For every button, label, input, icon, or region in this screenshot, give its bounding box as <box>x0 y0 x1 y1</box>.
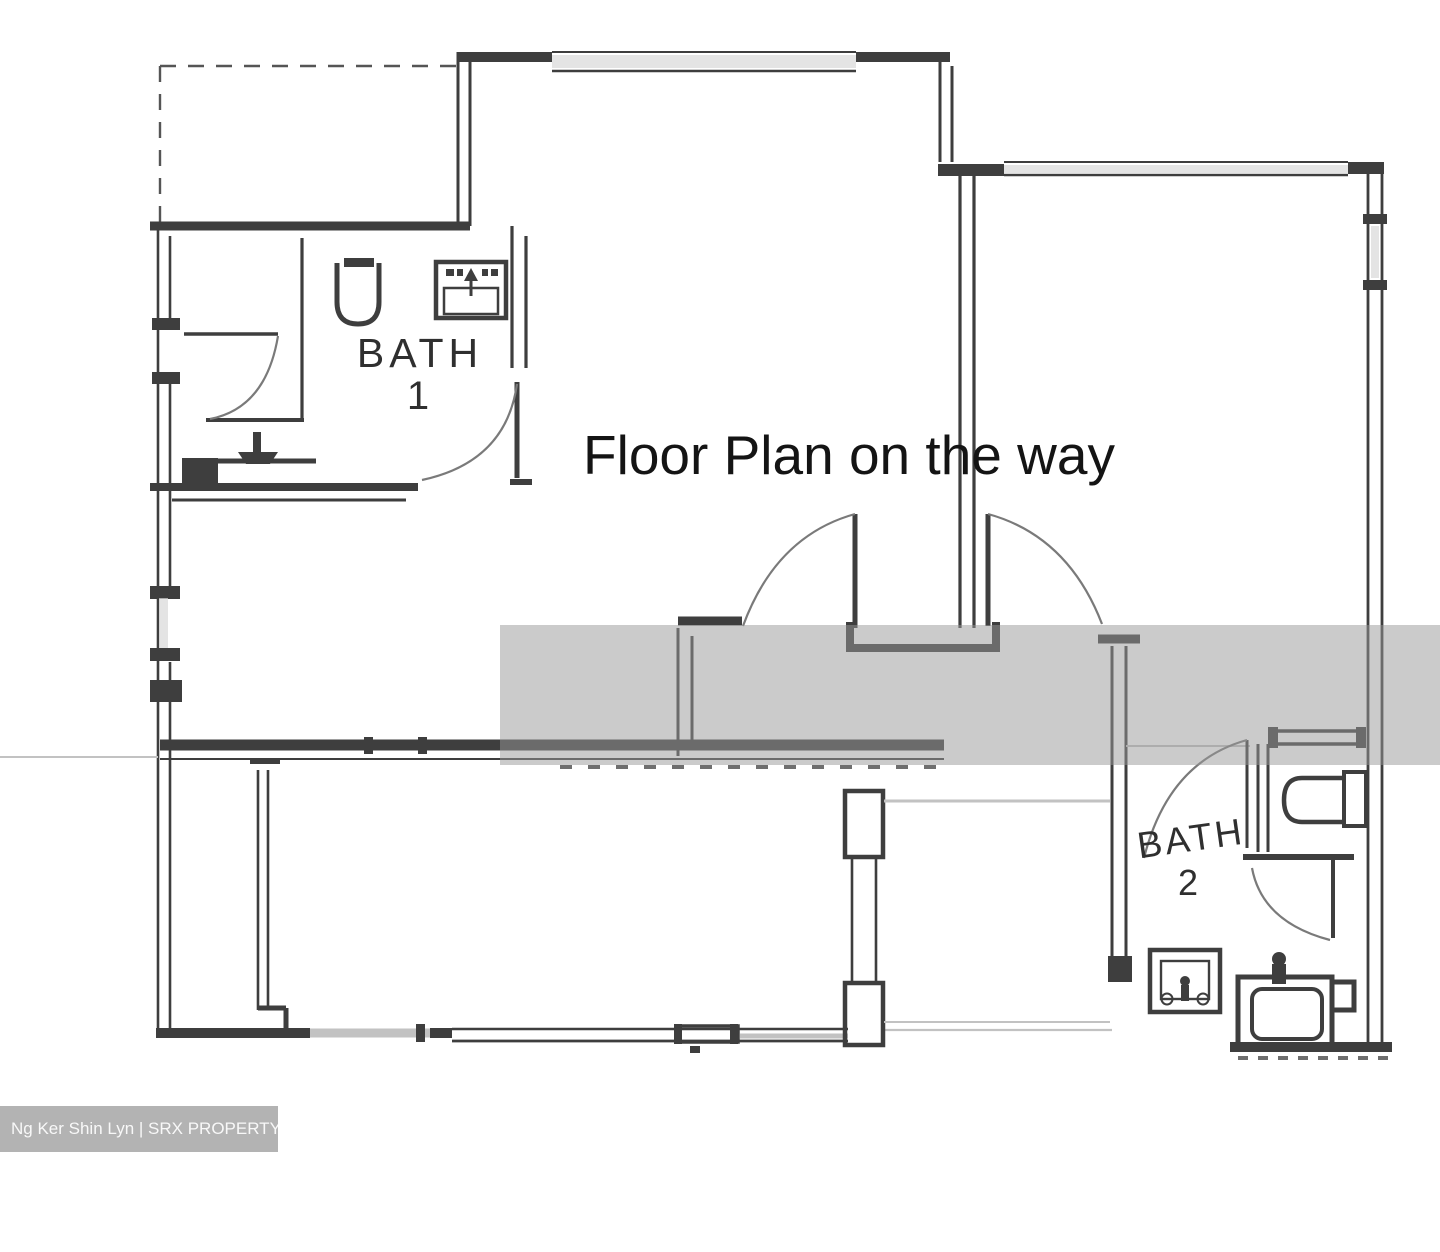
wall-segment <box>1332 982 1354 1010</box>
door-swing-arc <box>1252 868 1330 940</box>
bath1-label: BATH <box>352 330 488 377</box>
window-glass <box>1371 226 1379 278</box>
agent-watermark: Ng Ker Shin Lyn | SRX PROPERTY <box>0 1106 278 1152</box>
slider-window <box>845 791 1110 1045</box>
sink-basin <box>1252 989 1322 1039</box>
sink-detail <box>457 269 463 276</box>
window-jamb <box>152 318 180 330</box>
wall-segment <box>1368 164 1382 1048</box>
window-jamb <box>150 586 180 599</box>
window-jamb <box>730 1024 738 1044</box>
window-jamb <box>150 648 180 661</box>
window-block <box>845 791 883 857</box>
toilet-icon <box>344 258 374 267</box>
window-line <box>852 857 876 983</box>
window-glass <box>1004 165 1348 174</box>
toilet-icon <box>337 263 379 324</box>
wall-pier <box>182 458 218 484</box>
faucet-icon <box>464 268 478 281</box>
faucet-icon <box>1181 985 1189 1001</box>
wall-segment <box>458 52 470 226</box>
window-jamb <box>152 372 180 384</box>
door-swing-arc <box>743 514 855 626</box>
window-jamb <box>1363 214 1387 224</box>
toilet-icon <box>1284 778 1344 822</box>
door-swing-arc <box>988 514 1102 624</box>
faucet-icon <box>1180 976 1190 986</box>
wall-pier <box>150 680 182 702</box>
sink-detail <box>446 269 454 276</box>
gray-overlay-band <box>500 625 1440 765</box>
window-jamb <box>416 1024 425 1042</box>
wall-pier <box>1108 956 1132 982</box>
faucet-icon <box>1272 964 1286 984</box>
wall-segment <box>258 770 268 1010</box>
wall-segment <box>258 1008 286 1030</box>
bottom-walls <box>156 1024 1392 1058</box>
door-jamb <box>418 737 427 754</box>
floor-plan-message: Floor Plan on the way <box>583 423 1223 487</box>
window-jamb <box>1363 280 1387 290</box>
sink-detail <box>491 269 498 276</box>
bath1-number: 1 <box>388 374 448 419</box>
bedroom-partition <box>250 762 286 1030</box>
window-glass <box>159 598 168 648</box>
wall-segment <box>512 226 526 368</box>
window-block <box>845 983 883 1045</box>
floor-plan-page: Floor Plan on the way BATH 1 BATH 2 Ng K… <box>0 0 1440 1252</box>
toilet-icon <box>1344 772 1366 826</box>
faucet-icon <box>1272 952 1286 966</box>
door-jamb <box>364 737 373 754</box>
door-swing-arc <box>210 336 278 419</box>
bath2-number: 2 <box>1158 862 1218 904</box>
wall-segment <box>960 170 974 628</box>
window-jamb <box>674 1024 682 1044</box>
wall-segment <box>940 57 952 162</box>
drain-icon <box>253 432 261 454</box>
floor-plan-drawing <box>0 0 1440 1252</box>
window-glass <box>552 55 856 68</box>
dashed-outline <box>160 66 456 222</box>
tick <box>690 1046 700 1053</box>
sink-detail <box>482 269 488 276</box>
